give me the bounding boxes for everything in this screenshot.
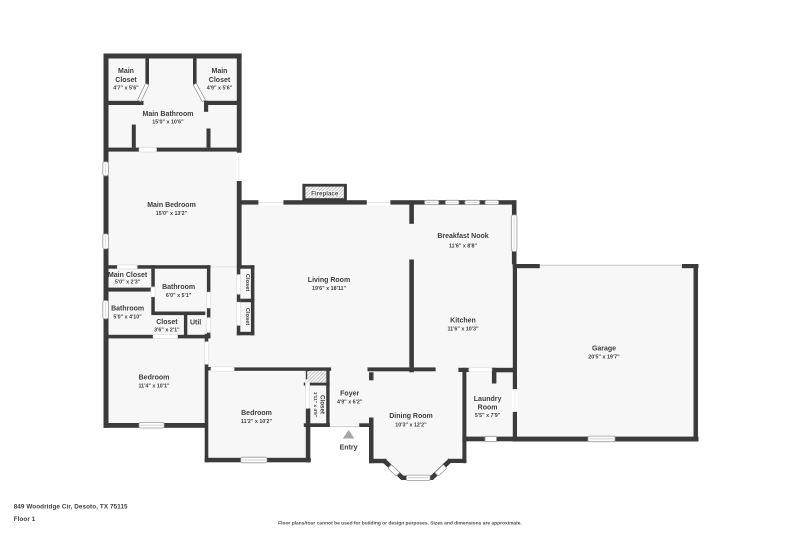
svg-text:15'0" x 10'6": 15'0" x 10'6" xyxy=(152,120,184,126)
svg-text:5'0" x 2'3": 5'0" x 2'3" xyxy=(115,280,141,286)
svg-text:4'9" x 5'6": 4'9" x 5'6" xyxy=(207,86,233,92)
svg-text:1'11" x 4'5": 1'11" x 4'5" xyxy=(312,392,318,417)
svg-text:5'5" x 7'9": 5'5" x 7'9" xyxy=(475,413,501,419)
svg-text:Entry: Entry xyxy=(340,444,358,451)
svg-text:11'6" x 10'3": 11'6" x 10'3" xyxy=(447,327,479,333)
svg-text:Kitchen: Kitchen xyxy=(450,318,476,325)
svg-text:Main Bedroom: Main Bedroom xyxy=(147,202,196,209)
svg-text:Foyer: Foyer xyxy=(340,390,359,397)
svg-text:15'0" x 13'2": 15'0" x 13'2" xyxy=(156,211,188,217)
svg-text:Main Bathroom: Main Bathroom xyxy=(143,111,194,118)
svg-text:Room: Room xyxy=(478,405,498,412)
svg-text:Closet: Closet xyxy=(209,77,231,84)
svg-text:3'6" x 2'1": 3'6" x 2'1" xyxy=(154,328,180,334)
svg-text:Living Room: Living Room xyxy=(308,277,350,284)
svg-text:Breakfast Nook: Breakfast Nook xyxy=(437,233,488,240)
svg-text:Util: Util xyxy=(190,320,201,327)
svg-text:11'4" x 10'1": 11'4" x 10'1" xyxy=(138,384,170,390)
svg-text:6'0" x 5'1": 6'0" x 5'1" xyxy=(166,293,192,299)
svg-text:Floor plans/tour cannot be use: Floor plans/tour cannot be used for buil… xyxy=(278,520,522,526)
svg-text:Closet: Closet xyxy=(156,319,178,326)
svg-text:Closet: Closet xyxy=(319,395,326,414)
svg-text:Main: Main xyxy=(212,68,228,75)
svg-text:Floor 1: Floor 1 xyxy=(14,516,36,523)
svg-text:11'2" x 10'2": 11'2" x 10'2" xyxy=(241,419,273,425)
svg-text:Dining Room: Dining Room xyxy=(389,413,433,420)
svg-text:849 Woodridge Cir, Desoto, TX: 849 Woodridge Cir, Desoto, TX 75115 xyxy=(14,504,128,511)
svg-text:Main: Main xyxy=(118,68,134,75)
svg-text:Fireplace: Fireplace xyxy=(311,190,339,197)
svg-text:11'6" x 8'8": 11'6" x 8'8" xyxy=(449,243,478,249)
svg-text:5'0" x 4'10": 5'0" x 4'10" xyxy=(113,315,142,321)
svg-text:Bedroom: Bedroom xyxy=(241,410,272,417)
svg-text:Main Closet: Main Closet xyxy=(108,272,148,279)
svg-text:Closet: Closet xyxy=(244,308,250,325)
svg-text:4'7" x 5'6": 4'7" x 5'6" xyxy=(113,86,139,92)
svg-text:Laundry: Laundry xyxy=(474,396,502,403)
svg-text:20'5" x 19'7": 20'5" x 19'7" xyxy=(588,355,620,361)
svg-text:Garage: Garage xyxy=(592,346,616,353)
svg-text:Bedroom: Bedroom xyxy=(139,375,170,382)
svg-text:Closet: Closet xyxy=(115,77,137,84)
svg-text:Bathroom: Bathroom xyxy=(111,306,144,313)
svg-text:4'9" x 6'2": 4'9" x 6'2" xyxy=(337,399,363,405)
svg-text:Closet: Closet xyxy=(244,274,250,291)
svg-text:19'6" x 18'11": 19'6" x 18'11" xyxy=(312,286,347,292)
svg-text:Bathroom: Bathroom xyxy=(162,284,195,291)
svg-text:10'3" x 12'2": 10'3" x 12'2" xyxy=(395,423,427,429)
